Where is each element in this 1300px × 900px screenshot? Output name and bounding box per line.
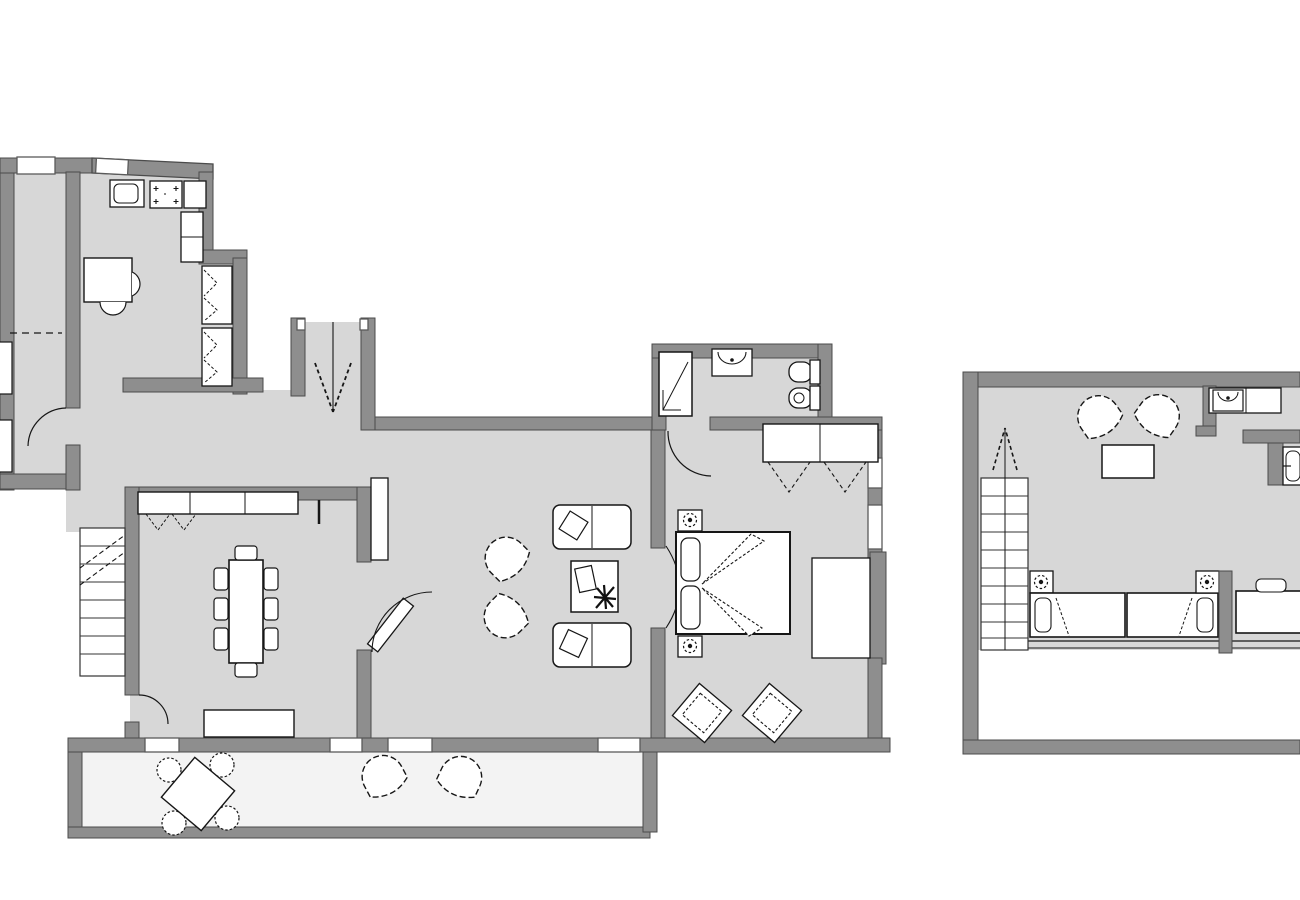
wall-dining-left: [125, 487, 139, 695]
wall-upper-niche-h: [1243, 430, 1300, 443]
upper-table: [1102, 445, 1154, 478]
sideboard-left-1: [0, 342, 12, 394]
upper-bed-3: [1236, 591, 1300, 633]
door-leaf-dining-living-1: [371, 478, 388, 560]
kitchen-table: [84, 258, 132, 302]
wall-dining-right-lower: [357, 650, 371, 745]
bidet-tank: [810, 386, 820, 410]
wall-bottom-band: [68, 738, 890, 752]
window-kitchen-top: [96, 158, 129, 175]
kitchen-counter-corner: [184, 181, 206, 208]
bed-pillow-2: [681, 586, 700, 629]
kitchen-wardrobe-1: [202, 266, 232, 324]
dining-sideboard: [138, 492, 298, 514]
dining-chair-e1: [264, 568, 278, 590]
wall-upper-basin-foot: [1196, 426, 1216, 436]
wall-terrace-bottom: [68, 827, 650, 838]
wall-kitchen-bottom: [123, 378, 263, 392]
dining-sideboard-south: [204, 710, 294, 737]
window-bottom-4: [598, 738, 640, 752]
window-bottom-3: [388, 738, 432, 752]
wall-divider-topleft-upper: [66, 172, 80, 408]
dining-chair-e2: [264, 598, 278, 620]
wall-upper-left: [963, 372, 978, 754]
main-floor-plan: [0, 157, 890, 838]
dining-table: [229, 560, 263, 663]
dining-chair-w2: [214, 598, 228, 620]
floor-plan-canvas: [0, 0, 1300, 900]
window-bottom-2: [330, 738, 362, 752]
toilet-tank: [810, 360, 820, 384]
toilet-bowl: [789, 362, 812, 382]
wall-upper-niche-v: [1268, 443, 1283, 485]
door-cap-vestibule-right: [360, 319, 368, 330]
wall-terrace-right: [643, 752, 657, 832]
shower: [659, 352, 692, 416]
upper-basin-dot: [1226, 396, 1230, 400]
upper-floor-plan: [963, 372, 1300, 754]
lamp-north-dot: [688, 518, 692, 522]
upper-bed-2-pillow: [1197, 598, 1213, 632]
wall-corridor-top: [375, 417, 657, 430]
dining-chair-w1: [214, 568, 228, 590]
wall-upper-bottom: [963, 740, 1300, 754]
upper-lamp-2-dot: [1205, 580, 1209, 584]
window-top-left: [17, 157, 55, 174]
window-bottom-1: [145, 738, 179, 752]
sideboard-left-2: [0, 420, 12, 472]
wall-hall-bottom: [0, 474, 66, 489]
wall-divider-topleft-lower: [66, 445, 80, 490]
wall-upper-top: [963, 372, 1300, 387]
dining-chair-w3: [214, 628, 228, 650]
window-bedroom-right-2: [868, 505, 882, 549]
wall-niche-right: [233, 258, 247, 394]
wall-vestibule-right: [361, 318, 375, 430]
wall-bedroom-niche-right: [870, 552, 886, 664]
upper-lamp-1-dot: [1039, 580, 1043, 584]
bed-pillow-1: [681, 538, 700, 581]
bidet-inner: [794, 393, 804, 403]
upper-bed-3-pillow: [1256, 579, 1286, 592]
wall-terrace-left: [68, 752, 82, 838]
lamp-south-dot: [688, 644, 692, 648]
dining-chair-n: [235, 546, 257, 560]
wall-living-bedroom-upper: [651, 430, 665, 548]
wall-living-bedroom-lower: [651, 628, 665, 748]
kitchen-wardrobe-2: [202, 328, 232, 386]
balcony-niche: [812, 558, 870, 658]
floor-vestibule: [303, 322, 365, 396]
dining-chair-s: [235, 663, 257, 677]
door-cap-vestibule-left: [297, 319, 305, 330]
wall-dining-right-upper: [357, 487, 371, 562]
kitchen-sink-basin: [114, 184, 138, 203]
dining-chair-e3: [264, 628, 278, 650]
washbasin-dot: [730, 358, 734, 362]
upper-bed-1-pillow: [1035, 598, 1051, 632]
wall-upper-bed-divider: [1219, 571, 1232, 653]
floor-plan-image: [0, 0, 1300, 900]
